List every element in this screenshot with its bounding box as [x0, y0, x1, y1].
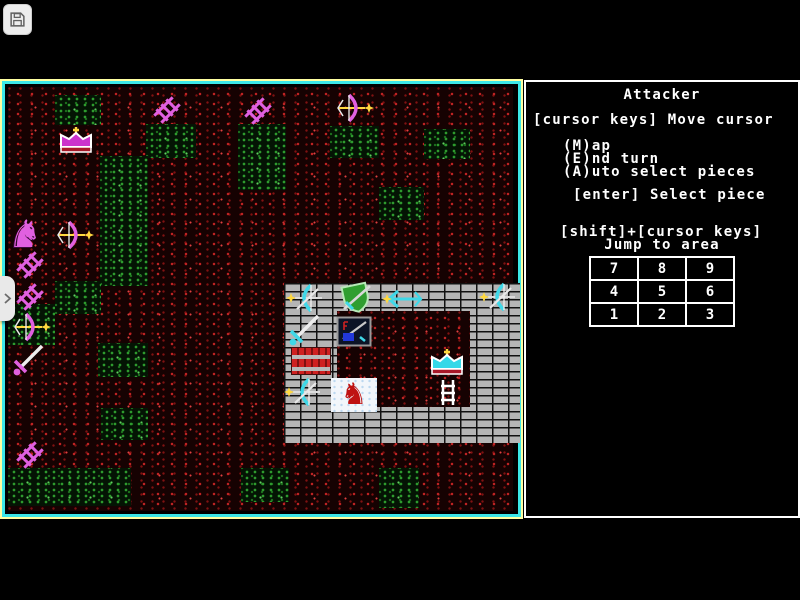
piece-crown-cyan[interactable] [428, 348, 466, 377]
piece-ladder[interactable] [15, 250, 45, 280]
jump-cell-2: 2 [638, 303, 686, 326]
jump-cell-8: 8 [638, 257, 686, 280]
screen: Attacker [cursor keys] Move cursor (M)ap… [0, 0, 800, 600]
jump-cell-6: 6 [686, 280, 734, 303]
piece-ladder[interactable] [243, 96, 273, 126]
grass-patch [241, 468, 289, 502]
grass-patch [55, 281, 101, 314]
key-auto-select: (A)uto select pieces [563, 164, 756, 180]
piece-shield-green[interactable] [336, 281, 376, 315]
jump-cell-7: 7 [590, 257, 638, 280]
grass-patch [238, 124, 286, 190]
chevron-right-icon [3, 292, 12, 305]
grass-patch [424, 129, 470, 159]
jump-cell-3: 3 [686, 303, 734, 326]
key-select-piece: [enter] Select piece [573, 187, 766, 203]
jump-cell-5: 5 [638, 280, 686, 303]
grass-patch [8, 468, 131, 506]
jump-cell-9: 9 [686, 257, 734, 280]
piece-ladder[interactable] [15, 282, 45, 312]
piece-bow-cyan[interactable] [283, 377, 323, 407]
grass-patch [98, 343, 148, 377]
grass-patch [55, 95, 101, 125]
piece-bow-cyan[interactable] [285, 283, 325, 313]
help-move-cursor: [cursor keys] Move cursor [533, 112, 774, 128]
piece-ladder[interactable] [152, 95, 182, 125]
piece-crown-magenta[interactable] [57, 126, 95, 155]
drawer-expand-tab[interactable] [0, 276, 15, 321]
jump-cell-1: 1 [590, 303, 638, 326]
piece-sword-pink[interactable] [10, 342, 46, 378]
floppy-icon [9, 11, 26, 28]
grass-patch [100, 156, 148, 286]
jump-cell-4: 4 [590, 280, 638, 303]
piece-crate[interactable] [291, 347, 331, 375]
grass-patch [101, 408, 148, 440]
piece-horse-pink[interactable]: ♞ [8, 216, 42, 252]
piece-ladder[interactable] [15, 440, 45, 470]
command-panel: Attacker [cursor keys] Move cursor (M)ap… [524, 80, 800, 518]
piece-bow-pink[interactable] [12, 312, 52, 342]
piece-ladder-white[interactable] [438, 379, 458, 406]
piece-sword-cyan[interactable] [286, 312, 322, 348]
piece-bow-cyan[interactable] [478, 282, 518, 312]
grass-patch [379, 468, 419, 508]
grass-patch [379, 187, 424, 220]
grass-patch [146, 124, 196, 158]
piece-emblem[interactable] [336, 316, 372, 347]
piece-horse-red-tile[interactable]: ♞ [331, 378, 377, 412]
piece-arrow-cyan[interactable] [382, 288, 424, 310]
piece-bow-pink[interactable] [335, 93, 375, 123]
grass-patch [330, 126, 379, 158]
jump-area-grid: 7 8 9 4 5 6 1 2 3 [589, 256, 735, 327]
panel-title: Attacker [526, 87, 798, 103]
piece-bow-pink[interactable] [55, 220, 95, 250]
key-jump-label: Jump to area [526, 237, 798, 253]
save-button[interactable] [3, 4, 32, 35]
